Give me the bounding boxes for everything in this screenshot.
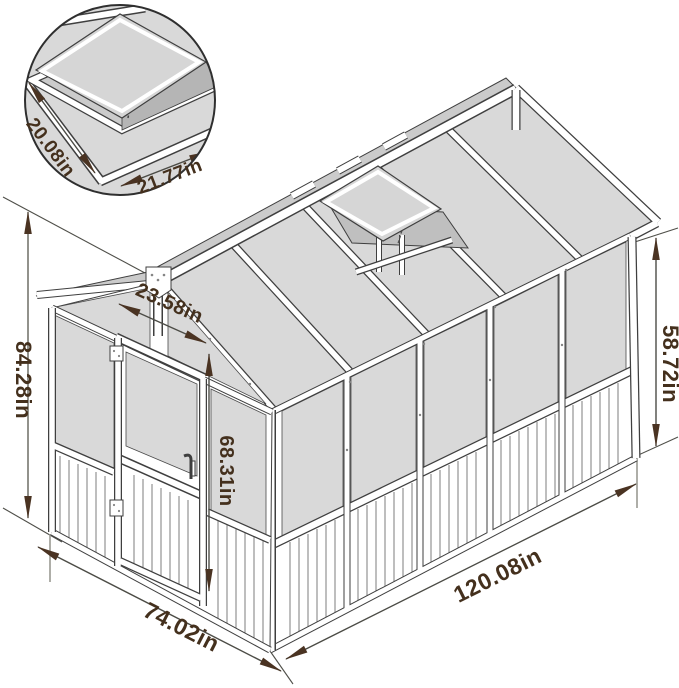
dimension-diagram: 20.08in 21.77in 84.28in 23.58in 68.31in … bbox=[0, 0, 679, 688]
dim-label-overall-height: 84.28in bbox=[11, 341, 36, 419]
greenhouse-diagram-svg: 20.08in 21.77in 84.28in 23.58in 68.31in … bbox=[0, 0, 679, 688]
dim-label-door-height: 68.31in bbox=[215, 435, 237, 506]
door-hinge-bottom bbox=[110, 500, 123, 516]
inset-detail: 20.08in 21.77in bbox=[22, 5, 218, 199]
door-hinge-top bbox=[110, 346, 123, 361]
dim-overall-height: 84.28in bbox=[11, 212, 36, 518]
dim-label-wall-height: 58.72in bbox=[658, 325, 679, 403]
dim-wall-height: 58.72in bbox=[656, 238, 679, 446]
